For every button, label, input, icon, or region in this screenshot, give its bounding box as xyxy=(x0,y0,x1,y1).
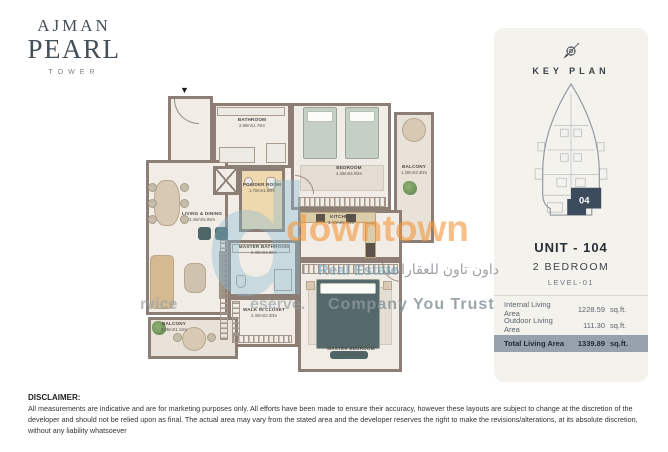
area-unit: sq.ft. xyxy=(610,305,638,314)
room-label-master-bathroom: MASTER BATHROOM 2.40mX2.60m xyxy=(235,244,293,255)
room-label-living-dining: LIVING & DINING 3.40mX5.85m xyxy=(176,211,228,222)
plant-icon xyxy=(403,181,417,195)
disclaimer-title: DISCLAIMER: xyxy=(28,393,646,402)
compass-icon xyxy=(561,41,581,61)
key-plan-unit-number: 04 xyxy=(579,195,590,206)
divider xyxy=(494,295,648,296)
fridge xyxy=(366,243,375,257)
balcony-chair xyxy=(173,333,182,342)
dining-chair xyxy=(148,215,157,224)
area-row-total: Total Living Area 1339.89 sq.ft. xyxy=(494,335,648,352)
area-row-outdoor: Outdoor Living Area 111.30 sq.ft. xyxy=(494,317,648,333)
disclaimer-text: All measurements are indicative and are … xyxy=(28,404,646,436)
brand-logo: AJMAN PEARL TOWER xyxy=(26,16,122,76)
bathtub xyxy=(219,147,255,163)
area-label: Outdoor Living Area xyxy=(504,316,565,334)
key-plan-building: 04 xyxy=(519,82,623,233)
room-label-balcony-right: BALCONY 1.30mX3.30m xyxy=(396,164,432,175)
dining-chair xyxy=(180,199,189,208)
disclaimer: DISCLAIMER: All measurements are indicat… xyxy=(28,393,646,436)
brand-name-line1: AJMAN xyxy=(26,16,122,36)
shower xyxy=(274,269,292,291)
pillow xyxy=(307,111,333,122)
brand-name-line3: TOWER xyxy=(26,69,122,76)
dining-chair xyxy=(148,199,157,208)
shower xyxy=(266,143,286,163)
pillow xyxy=(349,111,375,122)
floor-plan-sheet: AJMAN PEARL TOWER ▼ xyxy=(0,0,668,452)
bed xyxy=(345,107,379,159)
key-plan-panel: KEY PLAN 04 UNIT - 104 2 BEDROOM LEVEL-0… xyxy=(494,28,648,382)
brand-name-line2: PEARL xyxy=(26,34,122,65)
closet-shelf xyxy=(232,335,292,343)
shaft-box xyxy=(213,166,239,195)
balcony-chair xyxy=(207,333,216,342)
dining-chair xyxy=(148,183,157,192)
area-unit: sq.ft. xyxy=(610,339,638,348)
room-label-walk-in-closet: WALK IN CLOSET 2.40mX2.30m xyxy=(235,307,293,318)
area-label: Total Living Area xyxy=(504,339,565,348)
area-value: 1228.59 xyxy=(565,305,605,314)
balcony-table xyxy=(402,118,426,142)
coffee-table xyxy=(184,263,206,293)
armchair xyxy=(198,227,211,240)
room-label-balcony-bottom: BALCONY 3.36mX1.10m xyxy=(152,321,196,332)
armchair xyxy=(215,227,228,240)
wardrobe xyxy=(298,197,386,207)
dining-chair xyxy=(180,183,189,192)
unit-title: UNIT - 104 xyxy=(494,240,648,255)
area-row-internal: Internal Living Area 1228.59 sq.ft. xyxy=(494,301,648,317)
north-arrow-icon: ▼ xyxy=(180,85,189,95)
pillow xyxy=(320,283,376,294)
room-label-kitchen: KITCHEN 3.40mX2.40m xyxy=(318,214,364,225)
unit-level: LEVEL-01 xyxy=(494,278,648,287)
area-value: 111.30 xyxy=(565,321,605,330)
bed xyxy=(303,107,337,159)
floor-plan: ▼ xyxy=(140,85,470,395)
key-plan-title: KEY PLAN xyxy=(494,66,648,76)
area-unit: sq.ft. xyxy=(610,321,638,330)
sofa xyxy=(150,255,174,309)
stairs xyxy=(220,240,228,340)
area-value: 1339.89 xyxy=(565,339,605,348)
room-label-bathroom: BATHROOM 2.80mX1.75m xyxy=(217,117,287,128)
unit-type: 2 BEDROOM xyxy=(494,261,648,273)
side-table xyxy=(306,281,315,290)
side-table xyxy=(383,281,392,290)
room-label-bedroom: BEDROOM 4.40mX4.05m xyxy=(318,165,380,176)
toilet xyxy=(236,275,246,288)
master-bed xyxy=(316,279,380,349)
room-label-powder: POWDER ROOM 1.70mX1.60m xyxy=(240,182,284,193)
room-label-master-bedroom: MASTER BEDROOM 4.60mX3.70m xyxy=(320,346,382,357)
vanity xyxy=(217,107,285,116)
